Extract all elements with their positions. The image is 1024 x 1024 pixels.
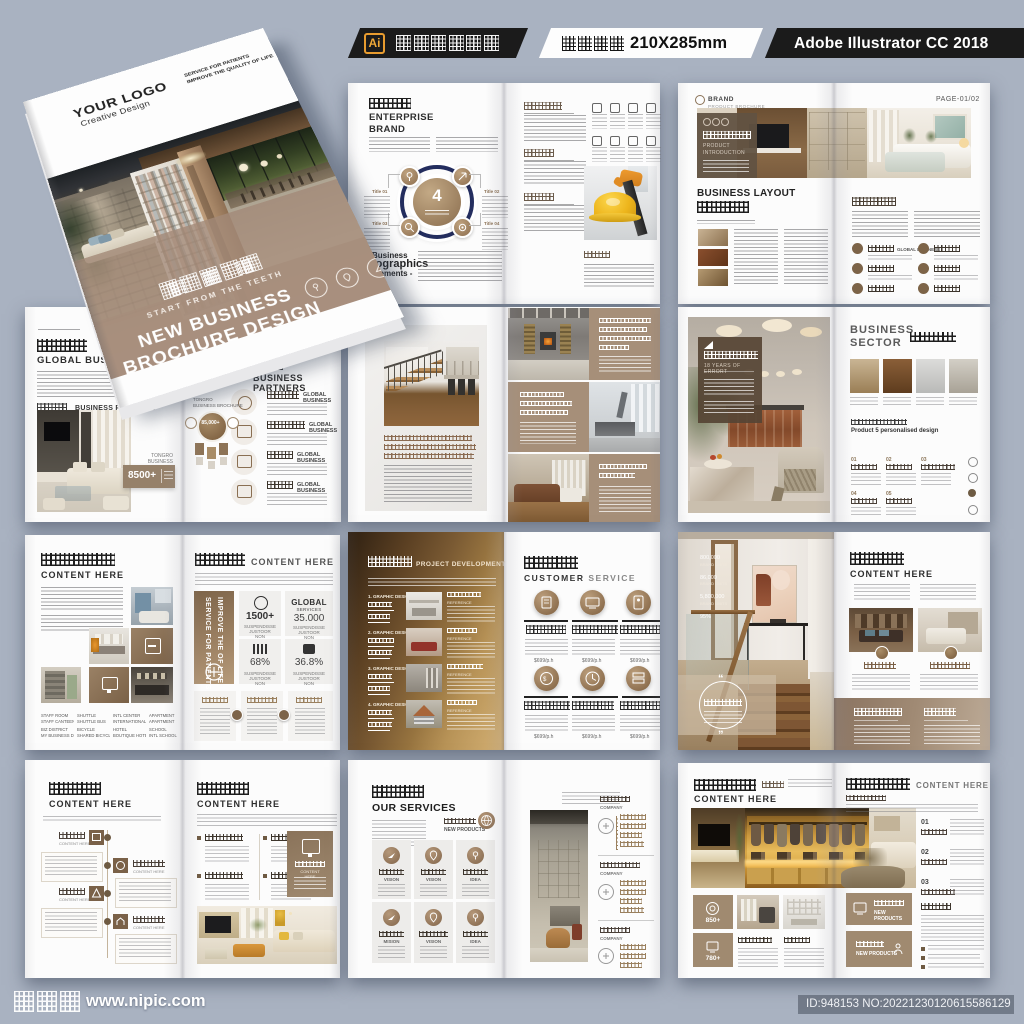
- svg-text:$: $: [543, 677, 547, 683]
